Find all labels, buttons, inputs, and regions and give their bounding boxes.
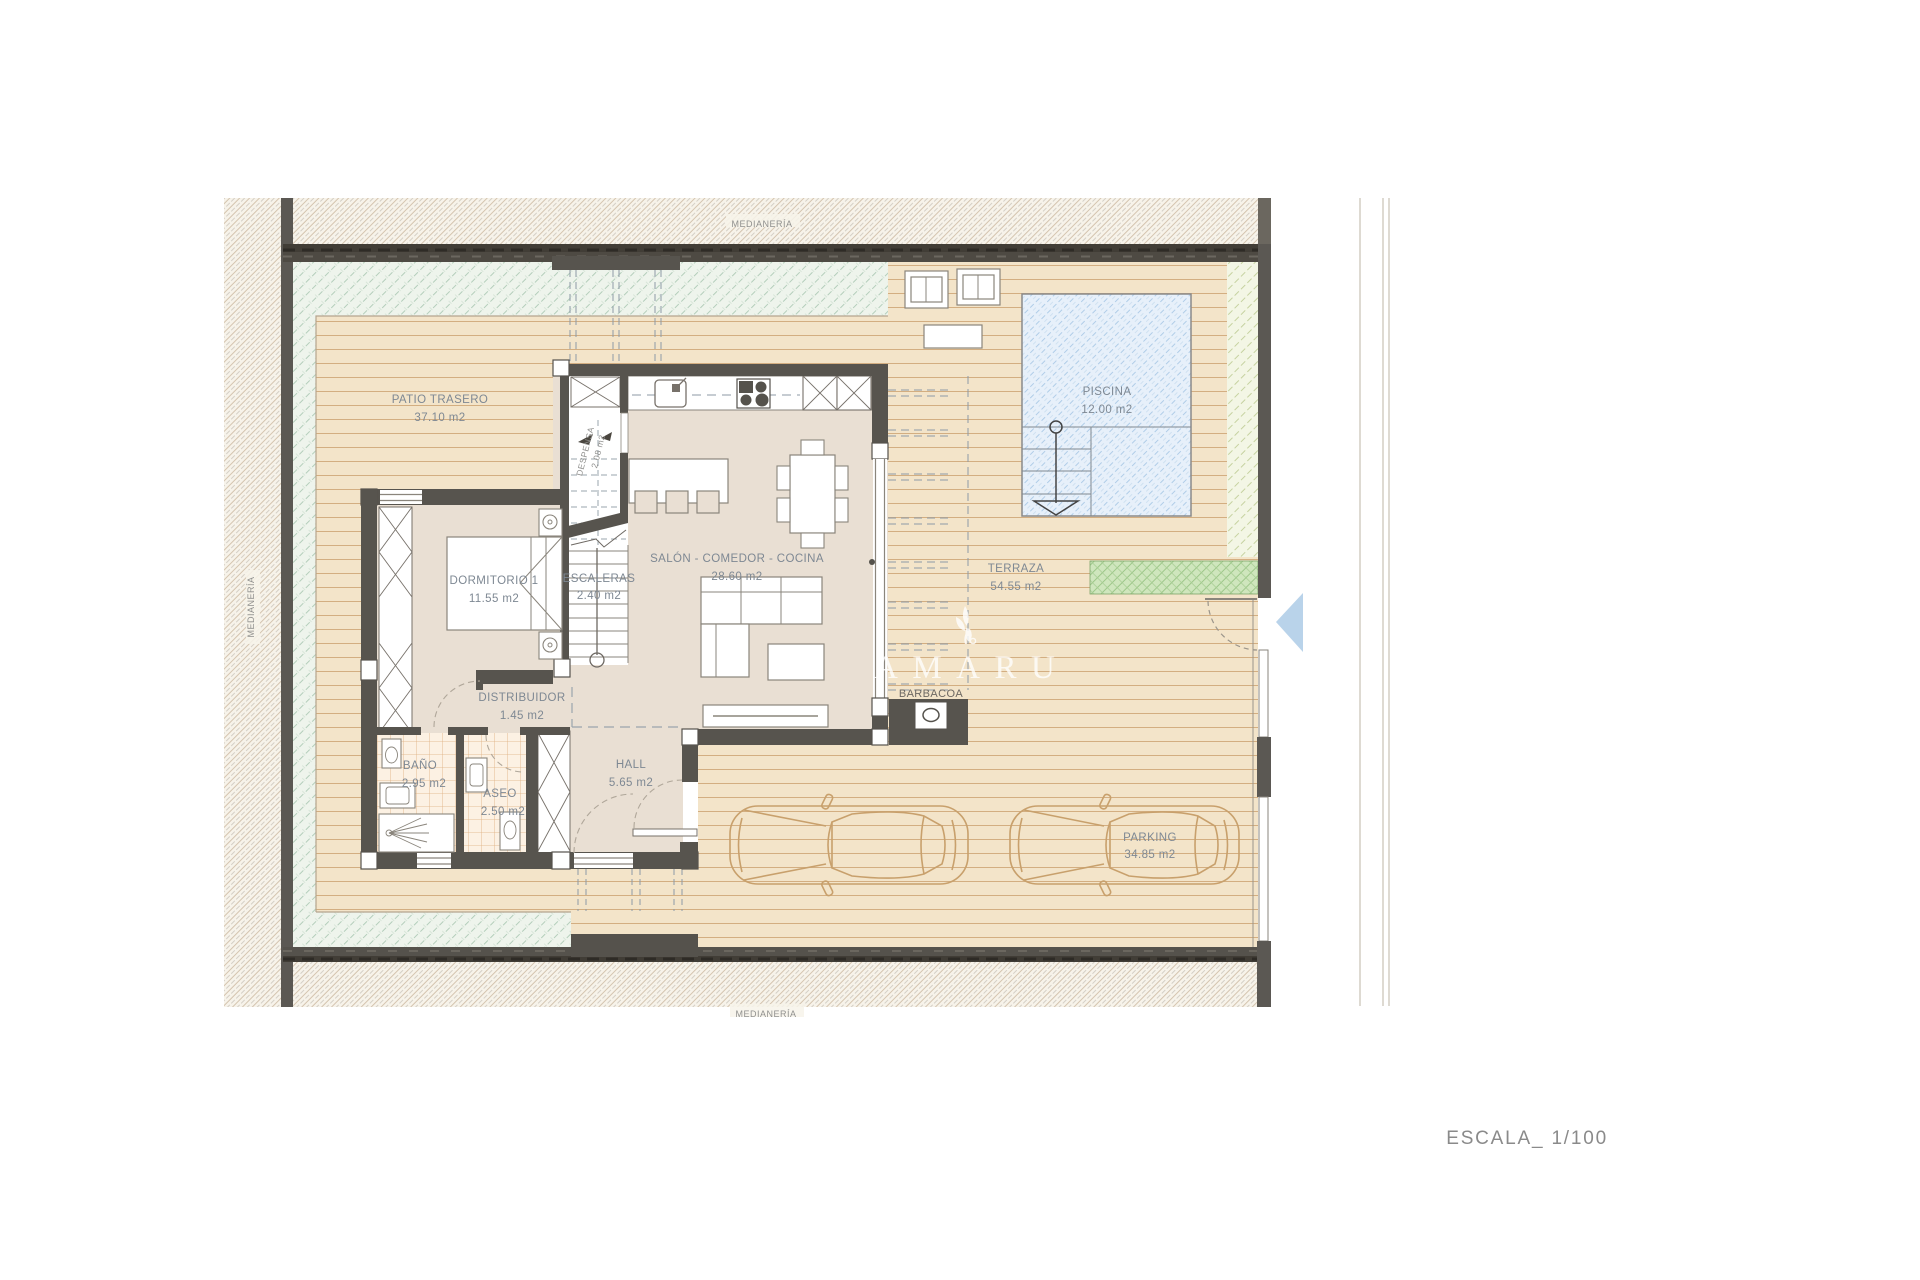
svg-text:AMARU: AMARU <box>874 650 1069 686</box>
svg-text:11.55 m2: 11.55 m2 <box>469 593 519 605</box>
svg-text:2.95 m2: 2.95 m2 <box>402 778 446 790</box>
svg-text:DORMITORIO 1: DORMITORIO 1 <box>450 575 539 587</box>
svg-text:ESCALERAS: ESCALERAS <box>563 573 636 585</box>
svg-text:SALÓN - COMEDOR - COCINA: SALÓN - COMEDOR - COCINA <box>650 552 824 565</box>
svg-text:PISCINA: PISCINA <box>1083 386 1132 398</box>
svg-text:ASEO: ASEO <box>483 788 517 800</box>
svg-text:2.40 m2: 2.40 m2 <box>577 590 621 602</box>
svg-text:BARBACOA: BARBACOA <box>899 688 964 700</box>
svg-text:1.45 m2: 1.45 m2 <box>500 710 544 722</box>
svg-text:28.60 m2: 28.60 m2 <box>711 571 762 583</box>
svg-text:MEDIANERÍA: MEDIANERÍA <box>246 576 256 637</box>
svg-text:MEDIANERÍA: MEDIANERÍA <box>731 219 792 229</box>
svg-text:5.65 m2: 5.65 m2 <box>609 777 653 789</box>
svg-text:HALL: HALL <box>616 759 647 771</box>
svg-text:MEDIANERÍA: MEDIANERÍA <box>735 1009 796 1019</box>
svg-text:ESCALA_ 1/100: ESCALA_ 1/100 <box>1446 1128 1608 1149</box>
svg-text:12.00 m2: 12.00 m2 <box>1081 404 1132 416</box>
svg-text:TERRAZA: TERRAZA <box>988 563 1044 575</box>
svg-text:DISTRIBUIDOR: DISTRIBUIDOR <box>478 692 565 704</box>
svg-text:37.10 m2: 37.10 m2 <box>414 412 465 424</box>
svg-text:PATIO TRASERO: PATIO TRASERO <box>392 394 489 406</box>
svg-text:BAÑO: BAÑO <box>403 759 437 772</box>
svg-text:54.55 m2: 54.55 m2 <box>990 581 1041 593</box>
svg-text:2.50 m2: 2.50 m2 <box>481 806 525 818</box>
svg-text:34.85 m2: 34.85 m2 <box>1124 849 1175 861</box>
svg-text:PARKING: PARKING <box>1123 832 1177 844</box>
